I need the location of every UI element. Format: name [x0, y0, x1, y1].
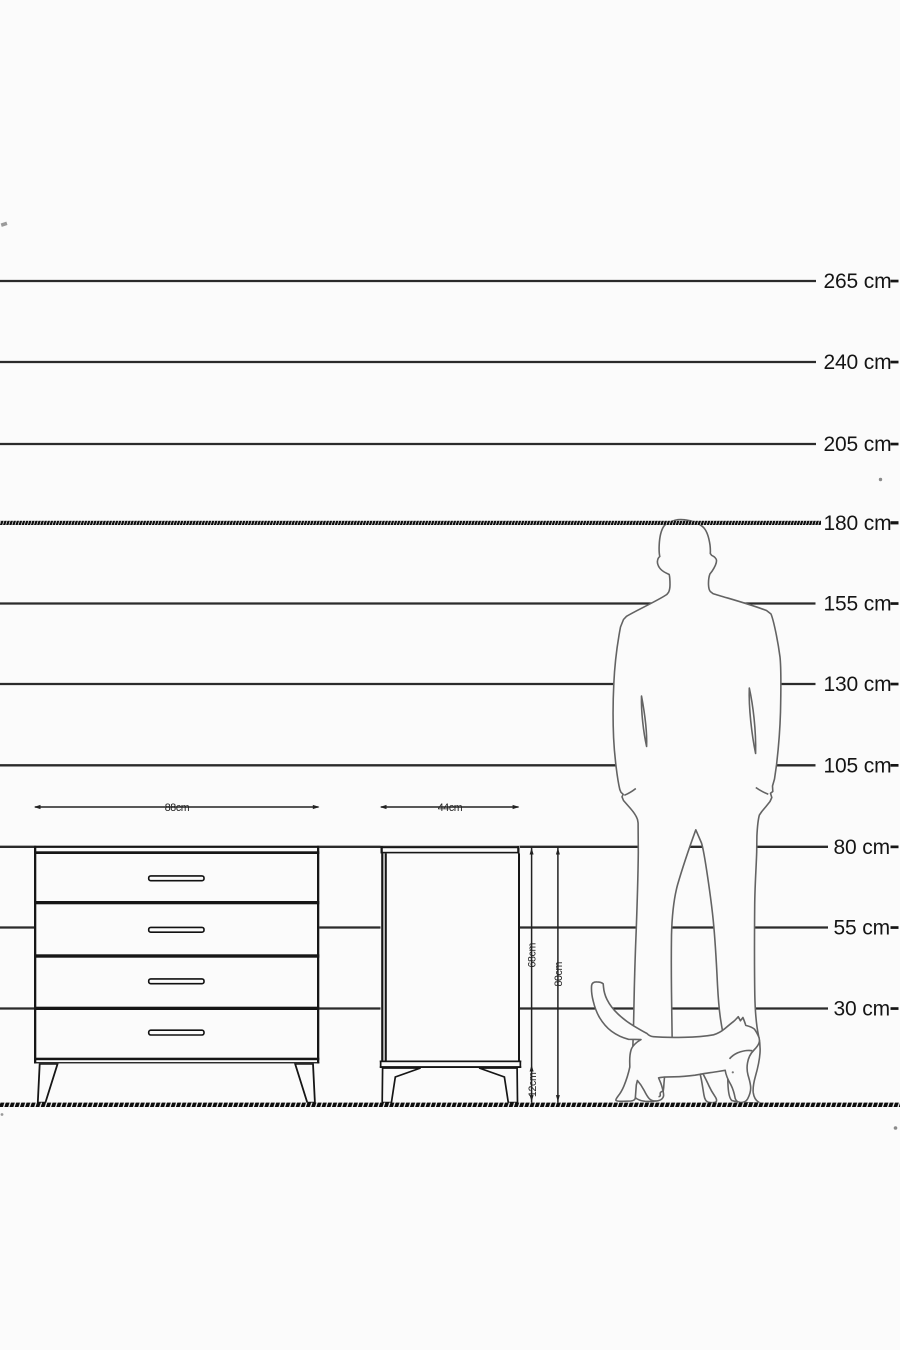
- svg-text:240 cm: 240 cm: [824, 351, 892, 374]
- svg-text:88cm: 88cm: [165, 802, 190, 814]
- svg-text:180 cm: 180 cm: [824, 512, 892, 535]
- svg-text:80cm: 80cm: [553, 962, 565, 987]
- svg-text:55 cm: 55 cm: [834, 917, 890, 940]
- svg-text:265 cm: 265 cm: [824, 270, 892, 293]
- svg-text:155 cm: 155 cm: [824, 593, 892, 616]
- svg-text:68cm: 68cm: [527, 943, 539, 968]
- svg-text:44cm: 44cm: [438, 802, 463, 814]
- svg-text:30 cm: 30 cm: [834, 998, 890, 1021]
- svg-text:105 cm: 105 cm: [824, 754, 892, 777]
- svg-text:12cm: 12cm: [527, 1072, 539, 1097]
- svg-text:130 cm: 130 cm: [824, 673, 892, 696]
- svg-text:205 cm: 205 cm: [824, 433, 892, 456]
- svg-text:80 cm: 80 cm: [834, 836, 890, 859]
